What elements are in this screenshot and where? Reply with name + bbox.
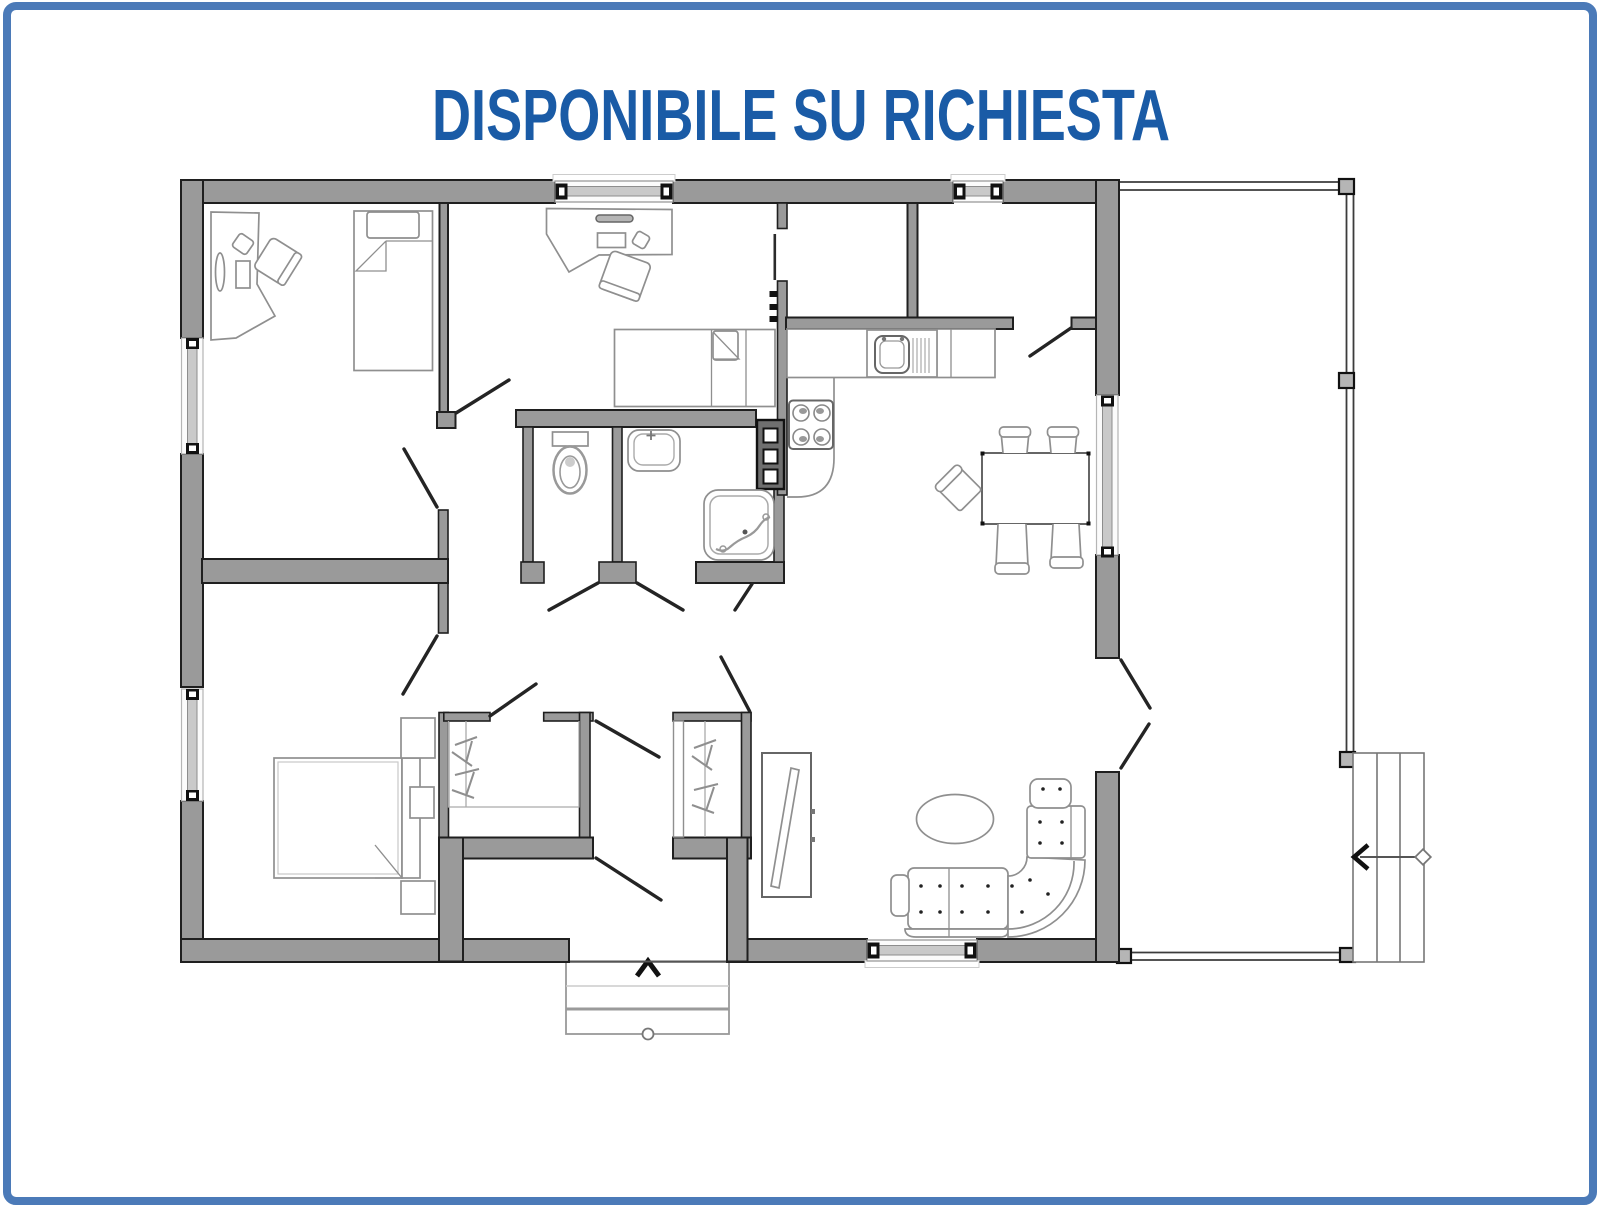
- svg-text:DISPONIBILE SU RICHIESTA: DISPONIBILE SU RICHIESTA: [432, 76, 1170, 156]
